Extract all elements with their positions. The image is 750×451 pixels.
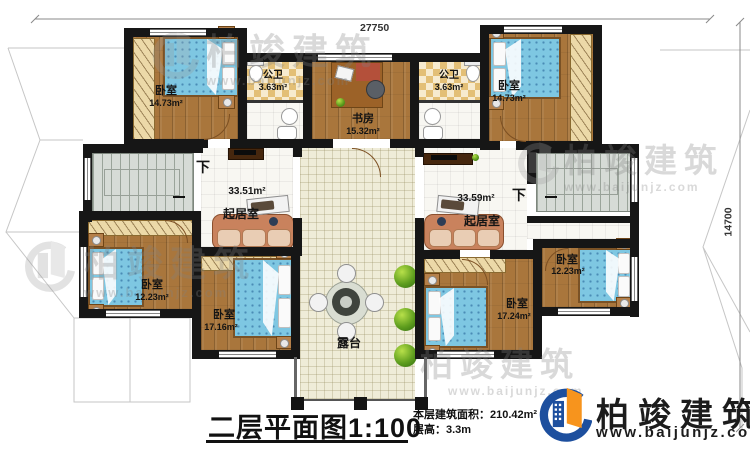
room-label-bedroom-bottom-right: 卧室	[556, 255, 578, 266]
floor-stats: 本层建筑面积：210.42m² 层高：3.3m	[413, 408, 537, 439]
window	[631, 257, 638, 301]
dimension-top: 27750	[360, 22, 389, 34]
plan-title-text: 二层平面图	[208, 413, 348, 443]
bath-fixture-right	[423, 126, 443, 140]
plan-scale: 1:100	[348, 413, 422, 443]
terrace-rail-left	[294, 357, 297, 400]
room-label-bathroom-right: 公卫	[439, 71, 459, 81]
watermark: 柏竣建筑 www.baijunjz.com	[84, 246, 256, 299]
floor-height-line: 层高：3.3m	[413, 423, 537, 438]
wall	[527, 216, 639, 223]
room-label-bathroom-left: 公卫	[263, 71, 283, 81]
wall	[291, 247, 300, 359]
nightstand	[276, 336, 292, 349]
pillow	[428, 291, 441, 315]
stairs-down-label-left: 下	[196, 160, 210, 174]
wall	[415, 250, 424, 358]
wall	[480, 141, 500, 150]
watermark: 柏竣建筑 www.baijunjz.com	[564, 144, 724, 193]
sofa-cushion	[267, 229, 291, 247]
room-label-bedroom-bottom-midleft: 卧室	[213, 310, 235, 321]
wall	[79, 211, 200, 220]
pillow	[493, 42, 506, 66]
room-label-bedroom-top-left: 卧室	[155, 86, 177, 97]
room-label-bedroom-top-right: 卧室	[498, 81, 520, 92]
sofa-cushion	[429, 229, 452, 247]
bath-partition	[247, 100, 303, 103]
wall	[533, 250, 542, 358]
room-area-bedroom-bottom-right: 12.23m²	[551, 267, 585, 276]
pillow	[278, 298, 291, 328]
room-area-bedroom-top-left: 14.73m²	[149, 99, 183, 108]
room-label-bedroom-bottom-left: 卧室	[141, 280, 163, 291]
room-area-study: 15.32m²	[346, 127, 380, 136]
sink-right	[424, 108, 441, 125]
window	[504, 26, 562, 33]
title-underline	[206, 440, 408, 443]
watermark: 柏竣建筑 www.baijunjz.com	[206, 34, 378, 87]
bath-partition	[419, 100, 480, 103]
room-label-terrace: 露台	[337, 337, 361, 349]
watermark-brand: 柏竣建筑	[564, 144, 724, 177]
floor-height-value: 3.3m	[446, 424, 471, 436]
pillow	[618, 276, 630, 297]
pillow	[278, 265, 291, 295]
blanket-fold	[263, 260, 279, 336]
watermark-url: www.baijunjz.com	[564, 181, 724, 193]
chair-east	[365, 293, 384, 312]
tv-screen-left	[234, 150, 256, 155]
wall	[480, 25, 489, 150]
wall	[238, 139, 333, 148]
desk-plant	[336, 98, 345, 107]
blanket-fold	[439, 288, 454, 346]
sink-left	[281, 108, 298, 125]
room-area-living-left: 33.51m²	[228, 187, 265, 197]
watermark-brand: 柏竣建筑	[206, 34, 378, 70]
window	[106, 310, 160, 317]
wall	[533, 239, 639, 248]
wall	[593, 25, 602, 150]
window	[558, 308, 610, 315]
floor-height-label: 层高：	[413, 424, 446, 436]
wall	[83, 144, 203, 153]
room-label-living-right: 起居室	[464, 215, 500, 227]
wall-stub	[293, 218, 302, 256]
person-figure	[269, 217, 278, 226]
floor-area-value: 210.42m²	[490, 409, 537, 421]
window	[219, 351, 276, 358]
room-label-living-left: 起居室	[223, 208, 259, 220]
wall	[415, 250, 460, 259]
bush	[394, 308, 417, 331]
floor-plan-canvas: 柏竣建筑 www.baijunjz.com 柏竣建筑 www.baijunjz.…	[0, 0, 750, 451]
floor-area-line: 本层建筑面积：210.42m²	[413, 408, 537, 423]
room-area-bedroom-bottom-midleft: 17.16m²	[204, 323, 238, 332]
watermark-url: www.baijunjz.com	[206, 74, 378, 87]
room-area-bathroom-left: 3.63m²	[259, 83, 288, 92]
bush	[394, 265, 417, 288]
wall-stub	[415, 143, 424, 157]
tv-screen-right	[431, 155, 457, 160]
room-area-bathroom-right: 3.63m²	[435, 83, 464, 92]
watermark-logo-icon	[148, 28, 200, 82]
wall	[390, 139, 487, 148]
watermark-url: www.baijunjz.com	[84, 286, 256, 299]
floor-living-right-ext	[527, 223, 630, 239]
wall	[410, 53, 419, 148]
wall	[533, 239, 542, 255]
floor-area-label: 本层建筑面积：	[413, 409, 490, 421]
roof-outline-right	[660, 50, 750, 430]
room-label-bedroom-bottom-midright: 卧室	[506, 299, 528, 310]
watermark-logo-icon	[20, 236, 76, 296]
bath-fixture-left	[277, 126, 297, 140]
dimension-right: 14700	[723, 207, 735, 236]
sofa-cushion	[477, 229, 500, 247]
company-logo-url: www.baijunjz.com	[596, 424, 750, 441]
wall-stub	[293, 143, 302, 157]
window	[84, 158, 91, 200]
staircase-left-rail	[104, 169, 180, 196]
wall	[192, 311, 201, 359]
staircase-right-section-mark	[545, 196, 557, 198]
staircase-left-section-mark	[173, 196, 185, 198]
chair-west	[309, 293, 328, 312]
plant-small	[472, 154, 479, 161]
room-label-study: 书房	[352, 114, 374, 125]
sofa-cushion	[453, 229, 476, 247]
bed-bottom-right	[578, 248, 634, 303]
pillow	[428, 317, 441, 341]
company-logo-icon	[536, 384, 592, 444]
stairs-down-label-right: 下	[512, 188, 526, 202]
chair-north	[337, 264, 356, 283]
watermark-brand: 柏竣建筑	[84, 246, 256, 282]
person-figure	[437, 217, 446, 226]
watermark-brand: 柏竣建筑	[420, 348, 584, 381]
room-area-bedroom-top-right: 14.73m²	[492, 94, 526, 103]
nightstand	[424, 273, 440, 286]
pillow	[618, 253, 630, 274]
room-area-living-right: 33.59m²	[457, 194, 494, 204]
bed-bottom-midright	[424, 286, 488, 348]
dining-table-center	[340, 296, 352, 308]
wardrobe-top-right	[570, 34, 592, 143]
bush	[394, 344, 417, 367]
room-area-bedroom-bottom-midright: 17.24m²	[497, 312, 531, 321]
room-area-bedroom-bottom-left: 12.23m²	[135, 293, 169, 302]
watermark-logo-icon	[514, 138, 560, 188]
wall	[124, 28, 133, 148]
nightstand	[218, 95, 235, 109]
